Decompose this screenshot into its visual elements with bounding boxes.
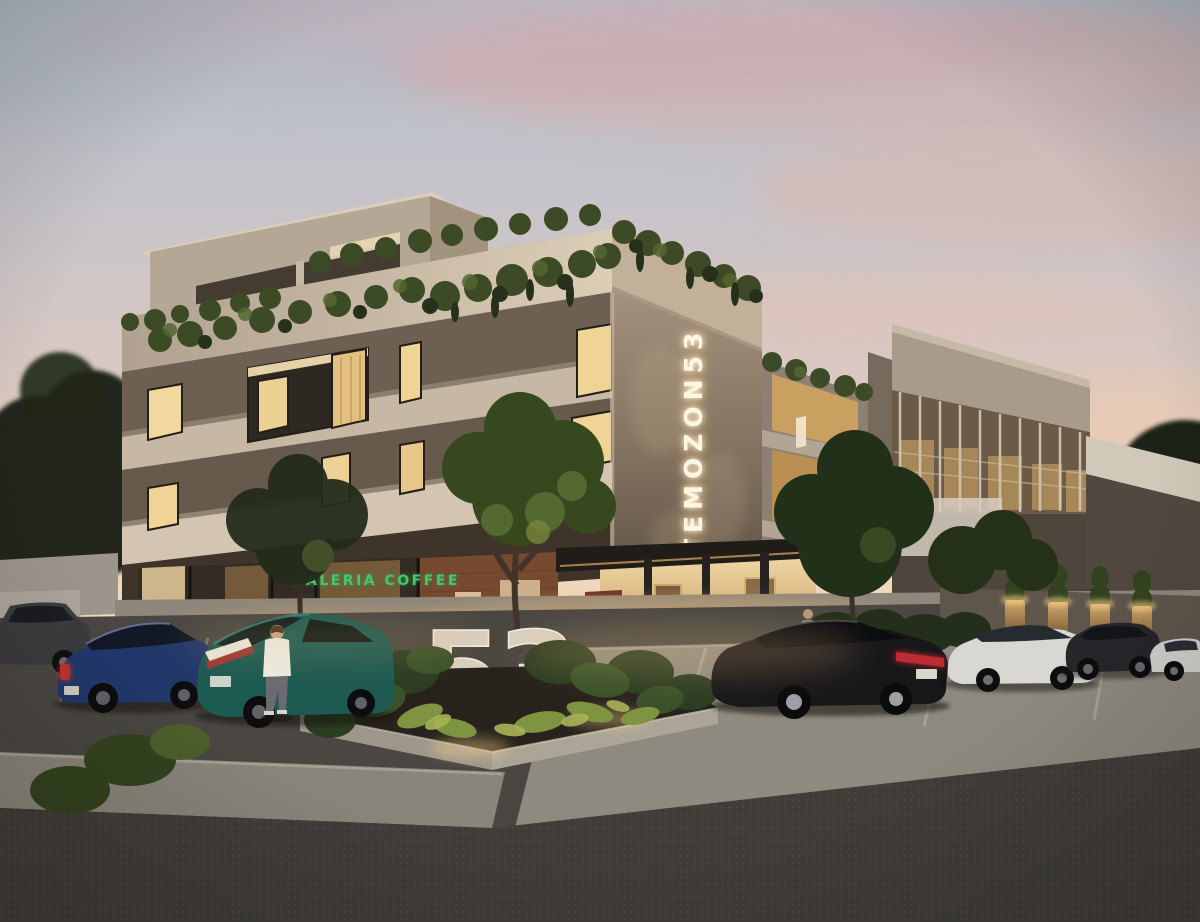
scene-svg: TEMOZON53 TEMOZON53 bbox=[0, 0, 1200, 922]
dusk-building-render: TEMOZON53 TEMOZON53 bbox=[0, 0, 1200, 922]
vignette bbox=[0, 0, 1200, 922]
